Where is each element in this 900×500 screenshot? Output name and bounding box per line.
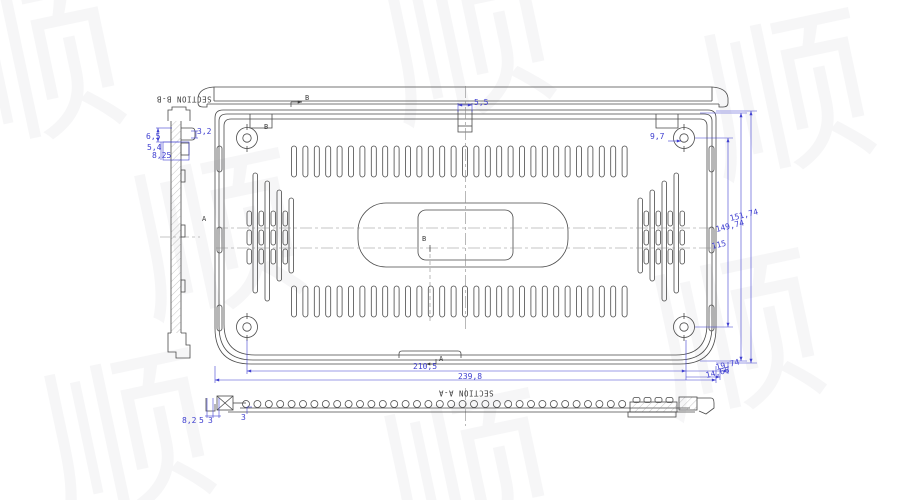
dim-boss-to-edge: 9,7 bbox=[650, 133, 664, 141]
dim-aa-3: 3 bbox=[208, 417, 213, 425]
dim-bb-4: 8,25 bbox=[152, 152, 171, 160]
dim-boss-spacing-h: 210,5 bbox=[413, 363, 437, 371]
dim-aa-4: 3 bbox=[241, 414, 246, 422]
dim-bb-1: 6,5 bbox=[146, 133, 160, 141]
top-profile-view bbox=[198, 87, 728, 107]
center-recess bbox=[358, 203, 568, 267]
marker-a-side: A bbox=[202, 216, 206, 223]
vent-slots-bottom bbox=[292, 286, 628, 317]
rib-sections bbox=[243, 401, 626, 408]
drawing-canvas bbox=[0, 0, 900, 500]
vent-cluster-left bbox=[247, 173, 294, 301]
top-tab bbox=[458, 110, 472, 132]
section-cut-markers bbox=[291, 102, 436, 364]
section-bb-label: SECTION B-B bbox=[153, 95, 215, 103]
dim-bb-2: 3,2 bbox=[197, 128, 211, 136]
aa-right-end bbox=[628, 397, 714, 417]
bottom-step bbox=[399, 351, 461, 358]
dim-aa-1: 8,2 bbox=[182, 417, 196, 425]
drawing-sheet: 顺 顺 顺 顺 顺 顺 顺 bbox=[0, 0, 900, 500]
section-aa-label: SECTION A-A bbox=[431, 389, 501, 397]
marker-b-center: B bbox=[422, 236, 426, 243]
dim-tab-width: 5,5 bbox=[474, 99, 488, 107]
section-aa-view bbox=[206, 396, 714, 417]
dim-overall-width: 239,8 bbox=[458, 373, 482, 381]
vent-cluster-right bbox=[638, 173, 685, 301]
marker-b-boss: B bbox=[264, 124, 268, 131]
marker-a-bottom: A bbox=[439, 356, 443, 363]
section-bb-view bbox=[168, 107, 195, 358]
vent-slots-top bbox=[292, 146, 628, 177]
dim-aa-2: 5 bbox=[199, 417, 204, 425]
main-plan-view bbox=[160, 86, 716, 426]
marker-b-top: B bbox=[305, 95, 309, 102]
